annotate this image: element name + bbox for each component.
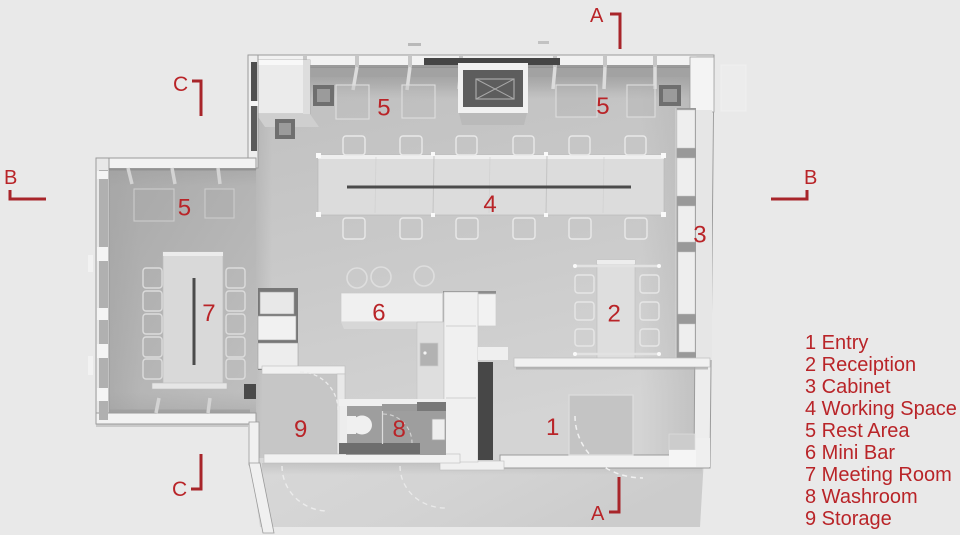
svg-text:5: 5 bbox=[178, 195, 191, 222]
svg-text:1: 1 bbox=[546, 414, 559, 441]
svg-text:5: 5 bbox=[377, 95, 390, 122]
svg-text:A: A bbox=[590, 5, 604, 27]
svg-text:2 Receiption: 2 Receiption bbox=[805, 354, 916, 376]
svg-text:3: 3 bbox=[693, 222, 706, 249]
svg-text:5: 5 bbox=[596, 93, 609, 120]
svg-text:A: A bbox=[591, 503, 605, 525]
svg-text:C: C bbox=[173, 73, 188, 96]
svg-text:2: 2 bbox=[608, 301, 621, 328]
svg-text:6 Mini Bar: 6 Mini Bar bbox=[805, 442, 895, 464]
svg-text:B: B bbox=[804, 167, 817, 189]
svg-text:3 Cabinet: 3 Cabinet bbox=[805, 376, 891, 398]
svg-text:B: B bbox=[4, 167, 17, 189]
svg-text:C: C bbox=[172, 478, 187, 501]
svg-text:4: 4 bbox=[483, 191, 496, 218]
svg-text:7: 7 bbox=[202, 300, 215, 327]
svg-text:1 Entry: 1 Entry bbox=[805, 332, 868, 354]
svg-text:9: 9 bbox=[294, 416, 307, 443]
svg-text:4 Working Space: 4 Working Space bbox=[805, 398, 957, 420]
svg-text:8 Washroom: 8 Washroom bbox=[805, 486, 918, 508]
svg-text:6: 6 bbox=[372, 300, 385, 327]
svg-text:8: 8 bbox=[393, 416, 406, 443]
svg-text:9 Storage: 9 Storage bbox=[805, 508, 892, 530]
svg-text:7 Meeting Room: 7 Meeting Room bbox=[805, 464, 952, 486]
svg-text:5 Rest Area: 5 Rest Area bbox=[805, 420, 910, 442]
